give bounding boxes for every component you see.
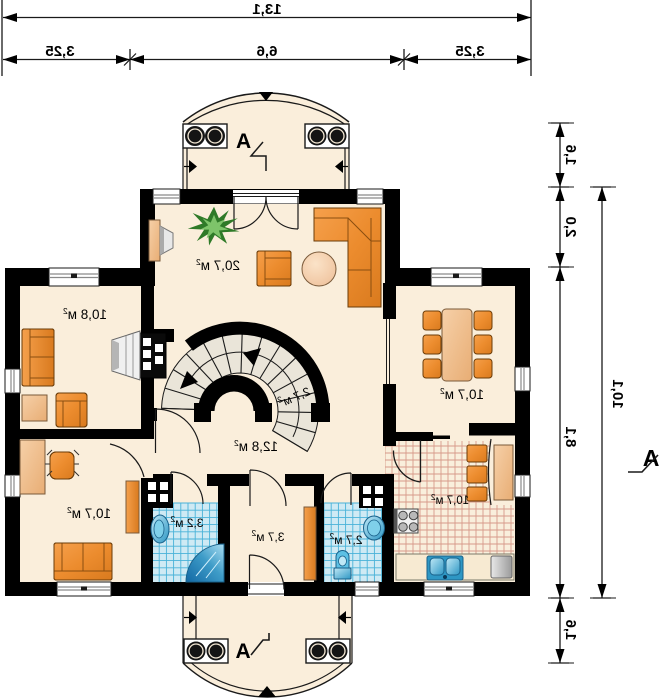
svg-text:A: A — [236, 130, 251, 153]
svg-text:1,6: 1,6 — [562, 620, 579, 641]
svg-text:2,0: 2,0 — [562, 217, 579, 238]
svg-text:8,1: 8,1 — [562, 427, 579, 448]
svg-text:A: A — [235, 640, 250, 663]
svg-text:10,8 м2: 10,8 м2 — [63, 306, 107, 322]
svg-text:6,6: 6,6 — [257, 43, 278, 60]
svg-text:10,7 м2: 10,7 м2 — [431, 492, 469, 507]
svg-text:3,25: 3,25 — [45, 43, 74, 60]
svg-text:20,7 м2: 20,7 м2 — [196, 257, 240, 273]
svg-text:3,25: 3,25 — [455, 43, 484, 60]
svg-text:13,1: 13,1 — [252, 1, 281, 18]
svg-text:12,8 м2: 12,8 м2 — [234, 438, 278, 454]
svg-text:10,7 м2: 10,7 м2 — [440, 386, 484, 402]
svg-text:10,1: 10,1 — [609, 379, 626, 408]
svg-text:10,7 м2: 10,7 м2 — [67, 505, 111, 521]
svg-text:1,6: 1,6 — [562, 145, 579, 166]
svg-text:A: A — [643, 445, 660, 471]
